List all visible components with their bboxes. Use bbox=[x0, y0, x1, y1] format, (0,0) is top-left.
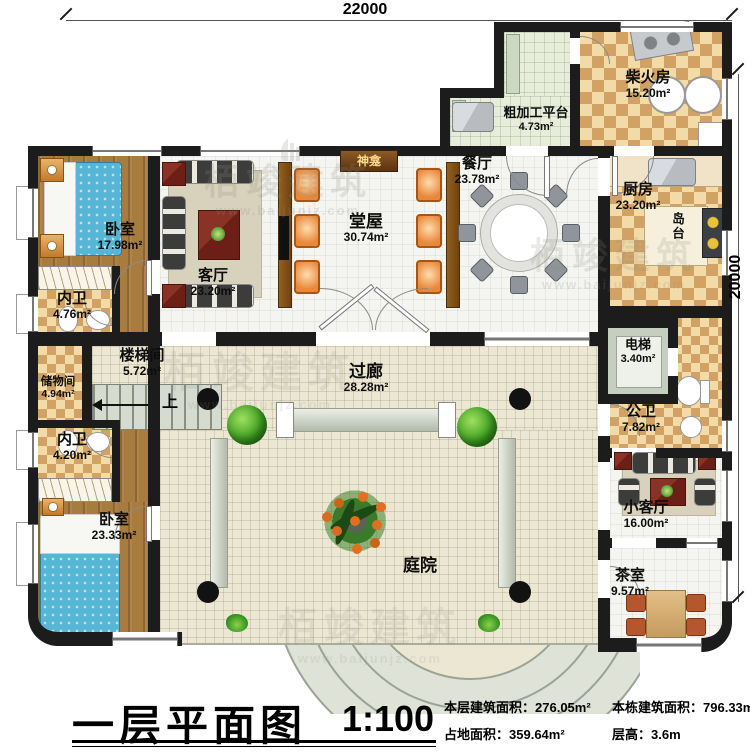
room-label-stairhall: 楼梯间5.72m² bbox=[90, 348, 194, 378]
tree bbox=[457, 407, 497, 447]
window bbox=[722, 420, 732, 452]
wall bbox=[430, 332, 484, 346]
pergola-post bbox=[276, 402, 294, 438]
armchair bbox=[294, 168, 320, 202]
tea-chair bbox=[626, 618, 646, 636]
wall bbox=[570, 32, 580, 38]
stat-storey-height: 层高：3.6m bbox=[612, 724, 681, 743]
armchair bbox=[294, 260, 320, 294]
title-underline-thin bbox=[72, 746, 436, 747]
room-label-bedroom1: 卧室17.98m² bbox=[76, 222, 164, 252]
wall bbox=[28, 420, 120, 428]
room-label-main-hall: 堂屋30.74m² bbox=[318, 212, 414, 244]
floor-hallway2 bbox=[120, 428, 148, 502]
plant bbox=[211, 227, 225, 241]
room-label-prep: 粗加工平台4.73m² bbox=[478, 106, 594, 133]
wall bbox=[722, 22, 732, 78]
sofa bbox=[694, 478, 716, 506]
stat-floor-area: 本层建筑面积：276.05m² bbox=[444, 697, 591, 716]
window bbox=[620, 22, 694, 32]
window bbox=[92, 146, 162, 156]
wall bbox=[112, 428, 120, 502]
room-label-small-lounge: 小客厅16.00m² bbox=[600, 500, 692, 530]
room-label-dining: 餐厅23.78m² bbox=[432, 156, 522, 186]
room-label-kitchen: 厨房23.20m² bbox=[590, 182, 686, 212]
dimension-line-right bbox=[738, 74, 739, 602]
stair-arrowhead bbox=[92, 399, 102, 411]
door-leaf bbox=[146, 260, 152, 296]
shrine-plaque: 神龛 bbox=[340, 150, 398, 172]
nightstand bbox=[40, 158, 64, 182]
dining-chair bbox=[510, 276, 528, 294]
pergola-beam bbox=[292, 408, 440, 432]
stat-footprint-area: 占地面积：359.64m² bbox=[444, 724, 565, 743]
dining-chair bbox=[562, 224, 580, 242]
fruit-cluster bbox=[350, 516, 360, 526]
window bbox=[28, 296, 38, 332]
plant bbox=[661, 485, 673, 497]
tree bbox=[227, 405, 267, 445]
window bbox=[28, 188, 38, 238]
nightstand bbox=[40, 234, 64, 258]
stove bbox=[702, 208, 724, 258]
pergola-beam bbox=[498, 438, 516, 588]
column bbox=[509, 388, 531, 410]
room-label-living: 客厅23.20m² bbox=[168, 268, 258, 298]
pergola-post bbox=[438, 402, 456, 438]
room-label-bath2: 内卫4.20m² bbox=[40, 432, 104, 462]
wall bbox=[598, 598, 610, 642]
column bbox=[197, 581, 219, 603]
wall bbox=[28, 332, 162, 346]
room-label-corridor: 过廊28.28m² bbox=[318, 362, 414, 394]
toilet-tank bbox=[700, 380, 710, 404]
dimension-label-right: 20000 bbox=[727, 245, 745, 309]
window bbox=[722, 78, 732, 120]
wall bbox=[598, 448, 612, 458]
window bbox=[28, 524, 38, 584]
wall bbox=[716, 538, 732, 548]
window bbox=[200, 146, 300, 156]
door-leaf bbox=[544, 156, 550, 198]
room-label-elevator: 电梯3.40m² bbox=[600, 338, 676, 365]
room-label-bedroom2: 卧室23.33m² bbox=[62, 512, 166, 542]
stair-up-label: 上 bbox=[158, 388, 182, 412]
room-label-firewood: 柴火房15.20m² bbox=[592, 70, 704, 100]
sofa bbox=[176, 160, 254, 184]
window bbox=[686, 538, 718, 548]
pergola-beam bbox=[210, 438, 228, 588]
floor-plan: 22000 20000 bbox=[0, 0, 750, 754]
sofa bbox=[162, 196, 186, 270]
wall bbox=[570, 64, 580, 146]
dimension-label-top: 22000 bbox=[330, 1, 400, 19]
nightstand bbox=[42, 498, 64, 516]
room-label-public-bath: 公卫7.82m² bbox=[602, 404, 680, 434]
title-underline bbox=[72, 740, 436, 743]
scale-label: 1:100 bbox=[342, 698, 434, 740]
wall bbox=[216, 332, 316, 346]
wall bbox=[722, 118, 732, 230]
wall-corner bbox=[698, 600, 732, 652]
room-label-storage: 储物间4.94m² bbox=[30, 376, 86, 401]
dining-table-top bbox=[490, 204, 548, 262]
toilet bbox=[676, 376, 702, 406]
wall bbox=[28, 466, 38, 524]
wall bbox=[494, 22, 504, 96]
wall bbox=[28, 236, 38, 296]
column bbox=[197, 388, 219, 410]
stat-building-area: 本栋建筑面积：796.33m² bbox=[612, 697, 750, 716]
window bbox=[484, 332, 590, 346]
window bbox=[722, 560, 732, 602]
side-table bbox=[162, 162, 186, 186]
column bbox=[509, 581, 531, 603]
room-label-courtyard: 庭院 bbox=[382, 556, 458, 575]
window bbox=[28, 432, 38, 468]
wall-corner bbox=[28, 600, 66, 646]
courtyard-plant bbox=[320, 486, 390, 556]
sliding-door bbox=[506, 34, 520, 94]
wall bbox=[160, 146, 200, 156]
tv bbox=[279, 216, 289, 260]
dimension-tick bbox=[60, 8, 73, 21]
wall bbox=[28, 146, 38, 188]
room-label-bath1: 内卫4.76m² bbox=[40, 291, 104, 321]
wall bbox=[598, 196, 610, 306]
wall bbox=[598, 638, 636, 652]
window bbox=[112, 632, 178, 646]
wardrobe-hatch bbox=[38, 266, 112, 290]
wall bbox=[656, 448, 732, 458]
wall bbox=[654, 146, 732, 156]
wall bbox=[598, 306, 732, 318]
wall bbox=[148, 540, 160, 642]
dining-chair bbox=[458, 224, 476, 242]
wall bbox=[494, 22, 620, 32]
shrub bbox=[226, 614, 248, 632]
armchair bbox=[416, 214, 442, 248]
courtyard-edge bbox=[160, 643, 598, 645]
island-label: 岛台 bbox=[668, 212, 687, 260]
sink bbox=[680, 416, 702, 438]
shrub bbox=[478, 614, 500, 632]
side-table bbox=[614, 452, 632, 470]
window bbox=[722, 470, 732, 522]
page-title: 一层平面图 bbox=[72, 692, 307, 753]
wall bbox=[598, 538, 612, 548]
window bbox=[636, 638, 702, 652]
wall bbox=[598, 146, 610, 158]
room-label-tea-room: 茶室9.57m² bbox=[600, 568, 660, 598]
dimension-tick bbox=[726, 8, 739, 21]
wall bbox=[656, 538, 686, 548]
armchair bbox=[294, 214, 320, 248]
dimension-line-top bbox=[66, 20, 732, 21]
